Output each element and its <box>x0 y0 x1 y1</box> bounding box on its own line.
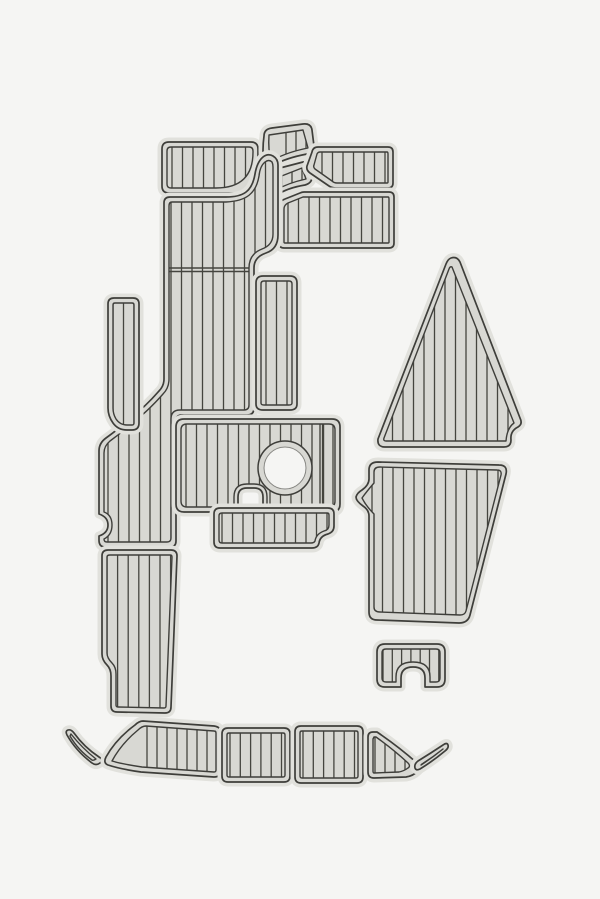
pad-gunnel-center-left <box>222 726 290 784</box>
pad-gunnel-center-right <box>295 724 363 785</box>
pad-aft-strip <box>214 506 334 550</box>
pad-lower-left-column <box>102 548 177 716</box>
pad-side-strip-left <box>108 296 139 432</box>
pad-walkthrough-column <box>256 274 297 412</box>
deck-pad-kit-render <box>0 0 600 899</box>
product-image-boat-deck-pad-kit <box>0 0 600 899</box>
pad-parallelogram-top-right <box>307 145 393 190</box>
pad-top-left-panel <box>162 140 258 195</box>
pad-rect-upper-right <box>279 190 394 250</box>
